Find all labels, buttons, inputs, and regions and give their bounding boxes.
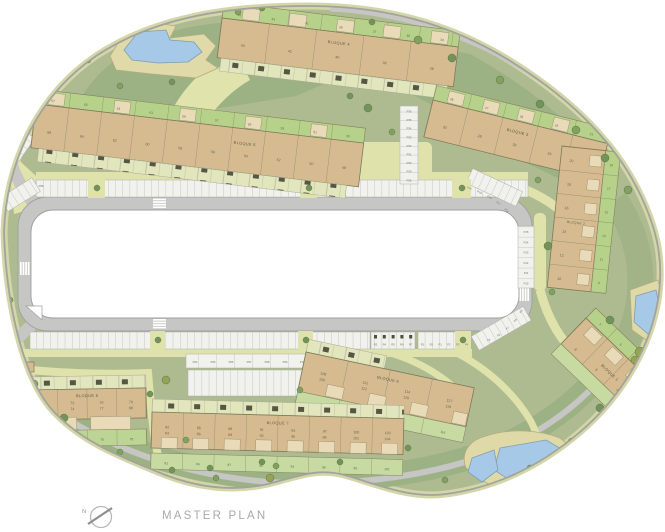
map-label: 77 — [100, 407, 104, 411]
map-label: 39 — [339, 25, 343, 29]
map-label: 98 — [323, 435, 327, 439]
tree — [414, 36, 422, 44]
tree — [306, 185, 312, 191]
map-label: P14 — [524, 240, 529, 244]
map-label: 55 — [248, 122, 252, 126]
tree — [207, 465, 213, 471]
map-label: P94 — [193, 360, 198, 364]
tree — [535, 177, 541, 183]
map-label: 44 — [241, 44, 245, 48]
tree — [448, 54, 456, 62]
map-label: 54 — [244, 154, 248, 158]
tree — [624, 186, 632, 194]
map-label: 37 — [372, 29, 376, 33]
map-label: 56 — [211, 150, 215, 154]
map-label: P98 — [265, 360, 270, 364]
map-label: 101 — [353, 436, 359, 440]
map-label: 59 — [182, 114, 186, 118]
bloque-8[interactable]: BLOQUE 8 70737679 71747780 69727578 — [28, 375, 147, 447]
map-label: 67 — [51, 99, 55, 103]
map-label: 58 — [178, 146, 182, 150]
map-label: P31 — [407, 153, 412, 157]
parking-label-p98: P98 — [39, 184, 44, 188]
map-label: 62 — [113, 138, 117, 142]
tree — [51, 44, 59, 52]
map-label: 52 — [276, 158, 280, 162]
map-label: 64 — [80, 134, 84, 138]
map-label: P15 — [524, 230, 529, 234]
map-label: P10 — [524, 282, 529, 286]
map-label: 81 — [165, 461, 169, 465]
tree — [459, 185, 465, 191]
map-label: 48 — [342, 166, 346, 170]
map-label: 94 — [291, 429, 295, 433]
map-label: R7 — [409, 343, 413, 347]
map-label: 76 — [99, 401, 103, 405]
tree — [549, 289, 555, 295]
map-label: 36 — [430, 67, 434, 71]
master-plan-map: P15P14P13P12P11P10 P36P35P34P33P32P31P30… — [0, 0, 665, 532]
tree — [405, 445, 411, 451]
map-label: P96 — [229, 360, 234, 364]
tree — [601, 154, 609, 162]
tree — [94, 185, 100, 191]
map-label: 18 — [567, 182, 571, 186]
tree — [117, 83, 123, 89]
map-label: 79 — [129, 400, 133, 404]
tree — [572, 126, 580, 134]
map-label: 49 — [346, 134, 350, 138]
tree — [337, 459, 343, 465]
map-label: 95 — [291, 435, 295, 439]
map-label: 61 — [149, 111, 153, 115]
map-label: 92 — [260, 434, 264, 438]
map-label: P4 — [465, 343, 469, 347]
tree — [369, 19, 375, 25]
map-label: 99 — [353, 466, 357, 470]
map-label: 51 — [313, 130, 317, 134]
map-label: 35 — [406, 34, 410, 38]
map-label: 53 — [280, 126, 284, 130]
map-label: 75 — [100, 438, 104, 442]
map-label: 13 — [602, 234, 606, 238]
map-label: 2 — [636, 408, 640, 412]
map-label: P35 — [407, 118, 412, 122]
map-label: 33 — [440, 38, 444, 42]
map-label: 91 — [260, 428, 264, 432]
map-label: P36 — [407, 110, 412, 114]
map-label: 102 — [384, 467, 390, 471]
map-label: 66 — [47, 131, 51, 135]
map-label: 10 — [557, 277, 561, 281]
tree — [94, 26, 102, 34]
map-label: 104 — [385, 437, 391, 441]
map-label: 103 — [385, 431, 391, 435]
tree — [606, 316, 614, 324]
tree — [213, 475, 219, 481]
map-label: 14 — [562, 230, 566, 234]
map-label: 60 — [145, 142, 149, 146]
map-label: 82 — [165, 425, 169, 429]
map-label: 1 — [660, 383, 664, 387]
map-label: 96 — [322, 465, 326, 469]
map-label: P3 — [456, 343, 460, 347]
tree — [442, 477, 448, 483]
tree — [389, 129, 395, 135]
map-label: 15 — [604, 210, 608, 214]
map-label: 17 — [607, 187, 611, 191]
map-label: P32 — [407, 144, 412, 148]
map-label: P34 — [407, 127, 412, 131]
map-label: 100 — [353, 430, 359, 434]
tree — [169, 467, 175, 473]
olive-tree — [162, 376, 170, 384]
plan-title: MASTER PLAN — [162, 510, 267, 522]
map-label: 16 — [564, 206, 568, 210]
parking-col-right[interactable] — [518, 226, 534, 288]
map-label: 78 — [130, 437, 134, 441]
map-label: 11 — [599, 257, 603, 261]
tree — [35, 57, 45, 67]
compass-north-label: N — [82, 509, 86, 515]
map-label: 69 — [42, 439, 46, 443]
map-label: R4 — [383, 343, 387, 347]
tree — [24, 88, 32, 96]
map-label: 42 — [288, 49, 292, 53]
north-compass: N — [82, 507, 112, 528]
tree — [496, 76, 504, 84]
map-label: R5 — [391, 343, 395, 347]
map-label: 20 — [569, 159, 573, 163]
tree — [183, 437, 189, 443]
bloque-7-label: BLOQUE 7 — [267, 420, 289, 426]
map-label: 12 — [559, 253, 563, 257]
tree — [536, 100, 544, 108]
map-label: 50 — [309, 162, 313, 166]
map-label: R3 — [374, 343, 378, 347]
map-label: 3 — [640, 363, 644, 367]
map-label: 65 — [84, 103, 88, 107]
path-right-2 — [534, 213, 546, 291]
map-label: 87 — [228, 463, 232, 467]
garage-strip — [28, 375, 146, 390]
bloque-8-label: BLOQUE 8 — [76, 393, 98, 398]
map-label: P28 — [407, 178, 412, 182]
map-label: 83 — [165, 431, 169, 435]
map-label: P97 — [247, 360, 252, 364]
parking-labels-mid-column: P36P35P34P33P32P31P30P29P28 — [407, 110, 412, 183]
map-label: P33 — [407, 135, 412, 139]
map-label: R2 — [430, 343, 434, 347]
map-label: 57 — [215, 118, 219, 122]
map-label: 86 — [197, 432, 201, 436]
tree — [147, 391, 153, 397]
map-label: P95 — [211, 360, 216, 364]
map-label: 97 — [323, 429, 327, 433]
map-label: 85 — [197, 426, 201, 430]
map-label: P12 — [524, 261, 529, 265]
tree — [347, 93, 353, 99]
map-label: 71 — [41, 408, 45, 412]
map-label: R1 — [421, 343, 425, 347]
map-label: P99 — [283, 360, 288, 364]
map-label: P13 — [524, 251, 529, 255]
parking-strip-103[interactable] — [188, 370, 314, 396]
map-label: R6 — [400, 343, 404, 347]
map-label: P11 — [524, 271, 529, 275]
ring-road-interior — [31, 210, 519, 318]
map-label: 19 — [609, 163, 613, 167]
map-label: 40 — [335, 55, 339, 59]
map-label: P30 — [407, 161, 412, 165]
map-label: 89 — [228, 433, 232, 437]
tree — [273, 463, 279, 469]
map-label: 74 — [70, 407, 74, 411]
map-label: 41 — [305, 21, 309, 25]
tree — [169, 79, 175, 85]
map-label: P29 — [407, 170, 412, 174]
tree — [460, 337, 466, 343]
map-label: 72 — [71, 438, 75, 442]
map-label: 80 — [129, 406, 133, 410]
tree — [259, 459, 265, 465]
map-label: P1 — [438, 343, 442, 347]
map-label: 43 — [271, 17, 275, 21]
tree — [12, 118, 20, 126]
map-label: 88 — [228, 427, 232, 431]
master-plan-canvas: P15P14P13P12P11P10 P36P35P34P33P32P31P30… — [0, 0, 665, 532]
map-label: 84 — [196, 462, 200, 466]
map-label: 38 — [382, 61, 386, 65]
path-mid — [352, 142, 432, 182]
tree — [303, 337, 309, 343]
tree — [297, 387, 303, 393]
compass-needle — [88, 508, 112, 524]
map-label: 93 — [290, 465, 294, 469]
tree — [155, 337, 161, 343]
map-label: 73 — [70, 401, 74, 405]
tree — [544, 242, 552, 250]
tree — [364, 104, 372, 112]
olive-tree — [266, 474, 274, 482]
map-label: P2 — [447, 343, 451, 347]
map-label: 63 — [117, 107, 121, 111]
